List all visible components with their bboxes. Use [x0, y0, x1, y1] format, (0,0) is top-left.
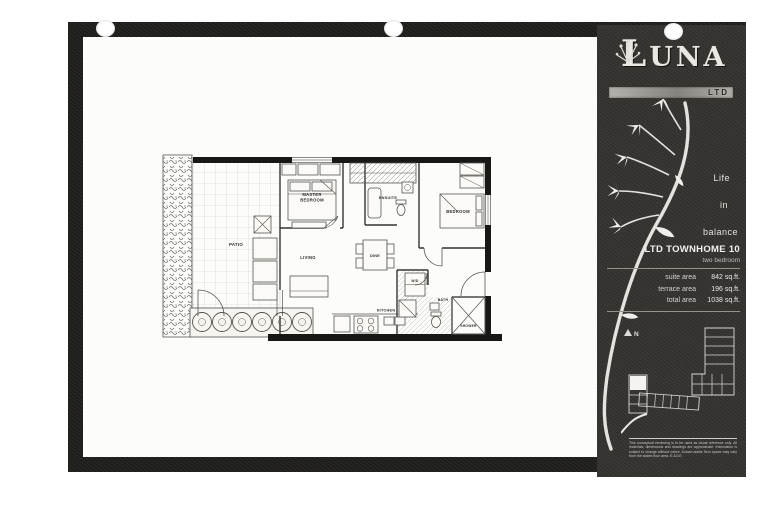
label-master-2: BEDROOM: [300, 198, 324, 203]
label-shower: SHOWER: [460, 324, 477, 328]
tagline-line-1: Life: [703, 165, 730, 192]
area-value: 842 sq.ft.: [696, 272, 740, 284]
tagline-line-2: in: [703, 192, 728, 219]
stem-swoosh: [621, 414, 647, 433]
luna-logo: LUNA: [607, 37, 739, 89]
planting-strip-left: [163, 155, 192, 337]
tagline-line-3: balance: [703, 219, 738, 246]
flower-sprig-icon: [613, 37, 643, 63]
area-label: terrace area: [607, 284, 696, 296]
divider-line: [607, 268, 740, 269]
label-kitchen: KITCHEN: [377, 309, 396, 313]
label-bath: BATH: [438, 298, 449, 302]
north-label: N: [634, 331, 639, 338]
area-label: suite area: [607, 272, 696, 284]
divider-line: [607, 311, 740, 312]
area-value: 1038 sq.ft.: [696, 295, 740, 307]
label-ensuite: ENSUITE: [379, 196, 397, 200]
unit-info: LTD TOWNHOME 10 two bedroom suite area 8…: [607, 244, 740, 315]
highlighted-unit: [630, 376, 646, 390]
punch-hole: [96, 20, 115, 37]
label-bedroom: BEDROOM: [446, 209, 470, 214]
label-laundry: W/D: [411, 279, 419, 283]
label-patio: PATIO: [229, 242, 243, 247]
area-row: suite area 842 sq.ft.: [607, 272, 740, 284]
scanned-brochure-page: PATIO MASTER BEDROOM ENSUITE BEDROOM LIV…: [0, 0, 760, 505]
area-row: total area 1038 sq.ft.: [607, 295, 740, 307]
brand-sub-label: LTD: [708, 88, 733, 97]
info-panel: LUNA LTD Life in balance LTD TOWNHOME 10…: [597, 25, 746, 477]
label-living: LIVING: [300, 255, 315, 260]
area-row: terrace area 196 sq.ft.: [607, 284, 740, 296]
area-value: 196 sq.ft.: [696, 284, 740, 296]
floor-plan: PATIO MASTER BEDROOM ENSUITE BEDROOM LIV…: [160, 150, 505, 355]
shrub-row-bottom: [190, 308, 313, 337]
north-arrow-icon: N: [624, 329, 639, 338]
label-dine: DINE: [370, 254, 380, 258]
area-label: total area: [607, 295, 696, 307]
tagline: Life in balance: [703, 165, 738, 246]
logo-ltd-bar: LTD: [609, 87, 733, 98]
punch-hole: [664, 23, 683, 40]
disclaimer-text: This conceptual rendering is to be used …: [629, 438, 737, 459]
label-master-1: MASTER: [302, 192, 321, 197]
punch-hole: [384, 20, 403, 37]
site-key-plan: N: [621, 325, 741, 439]
unit-subtitle: two bedroom: [607, 257, 740, 264]
building-outline: [629, 328, 734, 413]
unit-title: LTD TOWNHOME 10: [607, 244, 740, 255]
